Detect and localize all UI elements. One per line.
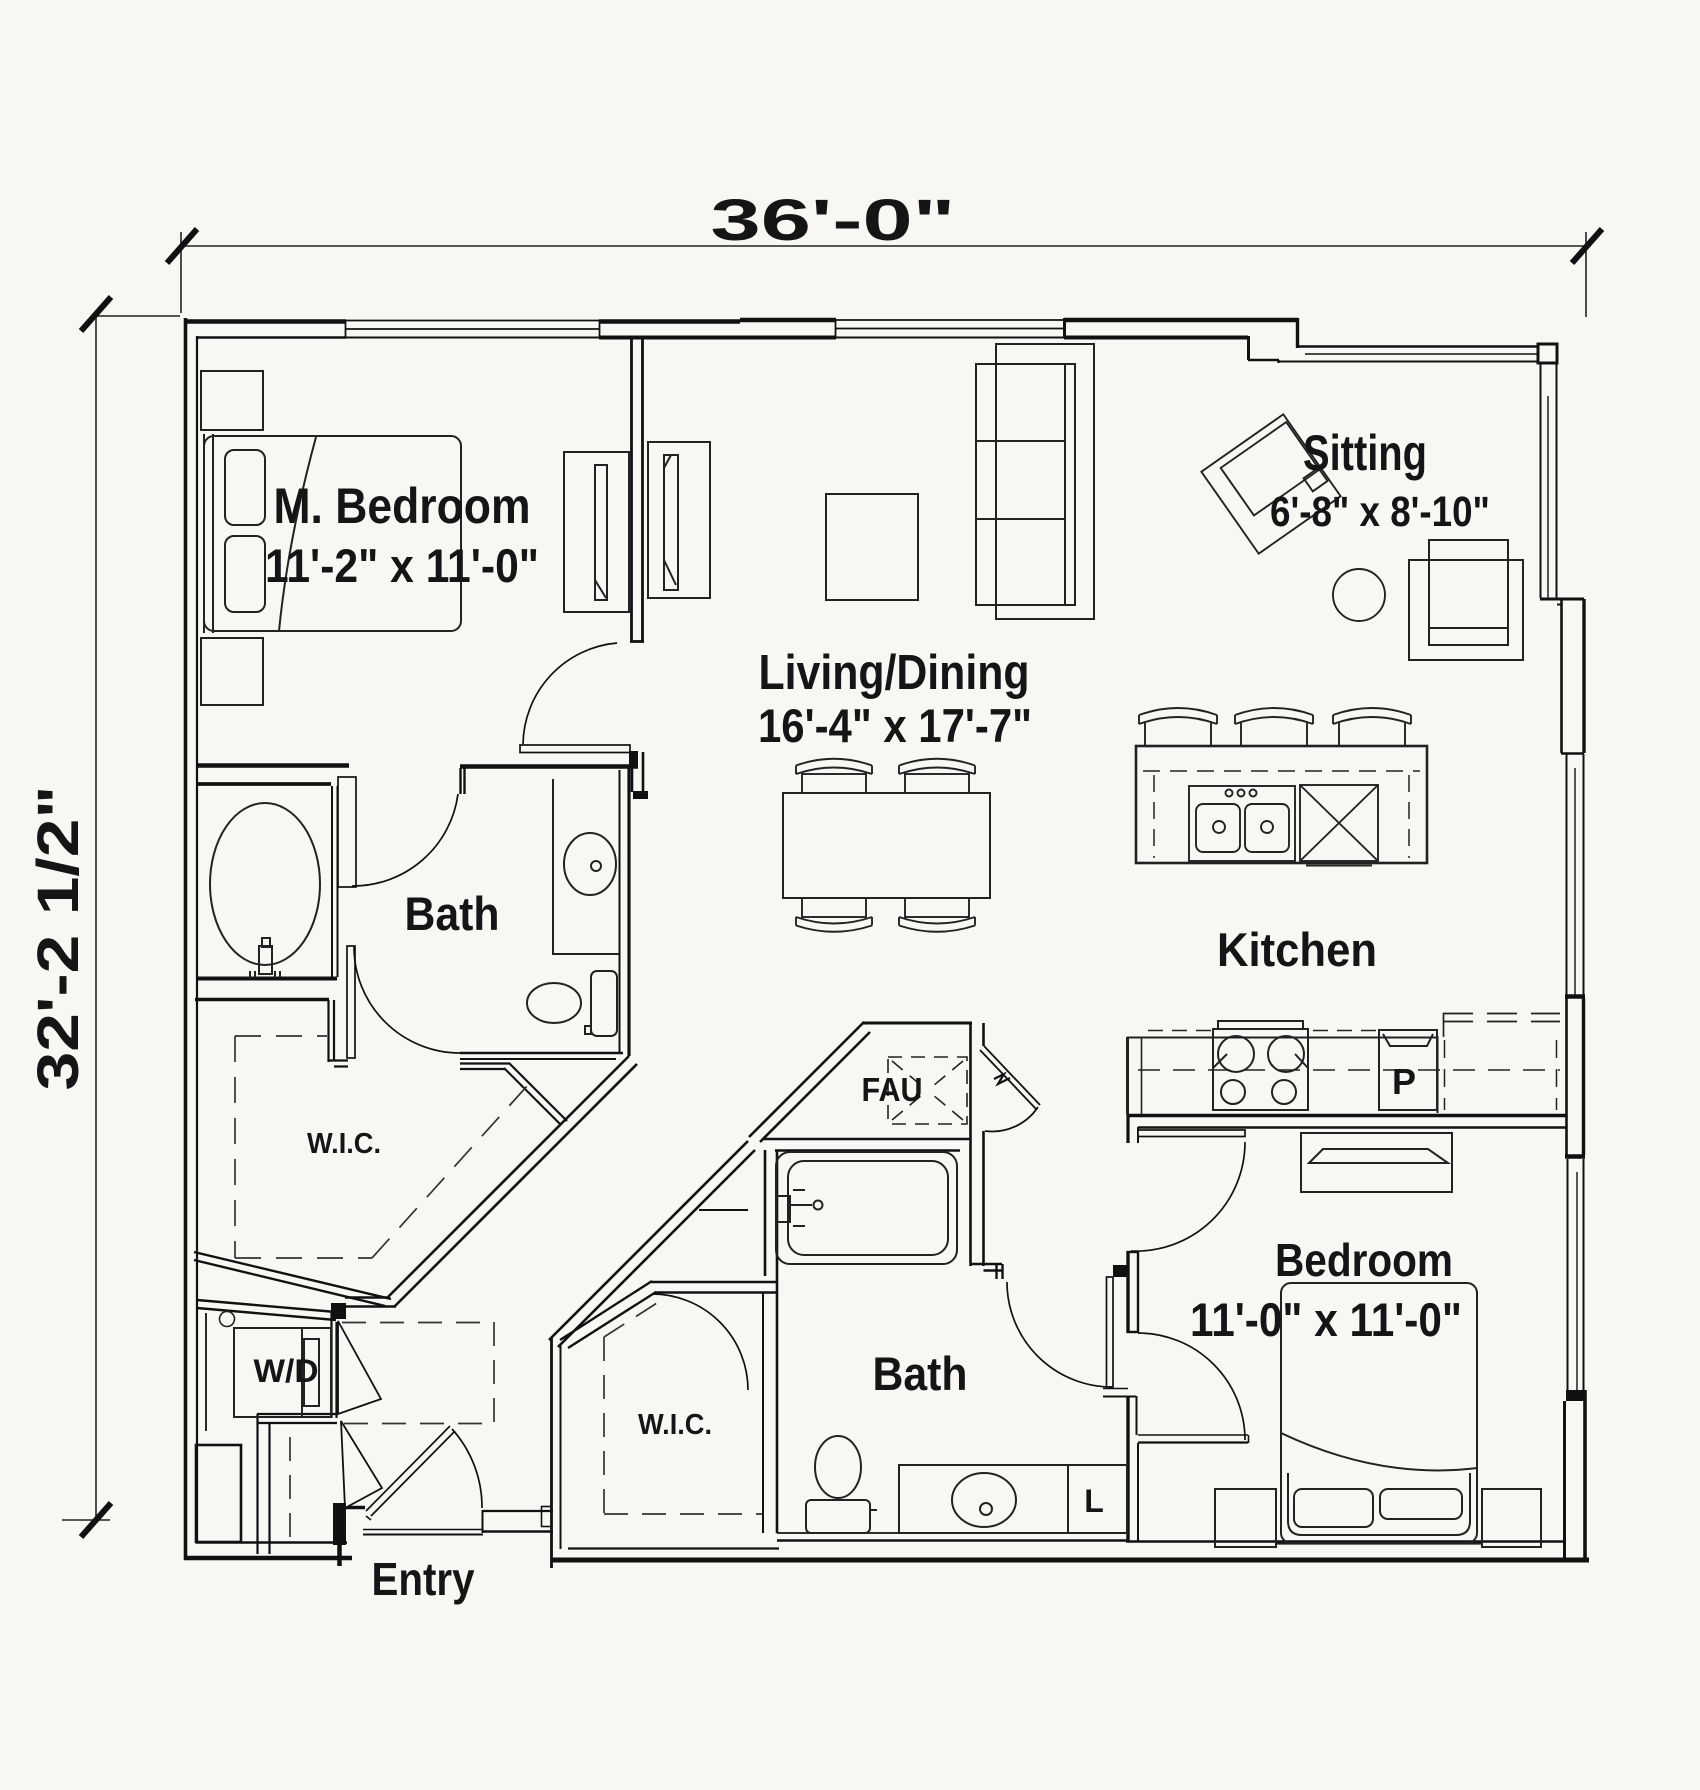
svg-text:32'-2 1/2": 32'-2 1/2" (26, 786, 91, 1091)
svg-text:16'-4" x 17'-7": 16'-4" x 17'-7" (758, 699, 1032, 752)
svg-text:Bath: Bath (873, 1347, 968, 1400)
svg-text:6'-8" x 8'-10": 6'-8" x 8'-10" (1270, 488, 1490, 536)
svg-text:Living/Dining: Living/Dining (759, 646, 1030, 700)
svg-text:11'-2" x 11'-0": 11'-2" x 11'-0" (265, 539, 539, 592)
svg-text:P: P (1392, 1061, 1416, 1102)
svg-text:Bath: Bath (405, 887, 500, 940)
svg-text:Kitchen: Kitchen (1217, 923, 1377, 976)
svg-text:L: L (1084, 1483, 1104, 1519)
svg-text:FAU: FAU (862, 1071, 923, 1108)
svg-text:36'-0": 36'-0" (711, 188, 956, 253)
svg-text:11'-0" x 11'-0": 11'-0" x 11'-0" (1190, 1293, 1462, 1346)
svg-text:Sitting: Sitting (1303, 425, 1427, 481)
svg-text:W.I.C.: W.I.C. (638, 1409, 712, 1441)
svg-text:Bedroom: Bedroom (1275, 1234, 1453, 1286)
svg-text:W.I.C.: W.I.C. (307, 1128, 381, 1160)
svg-text:W/D: W/D (254, 1353, 319, 1389)
svg-text:M. Bedroom: M. Bedroom (274, 478, 531, 534)
svg-text:Entry: Entry (372, 1553, 475, 1605)
